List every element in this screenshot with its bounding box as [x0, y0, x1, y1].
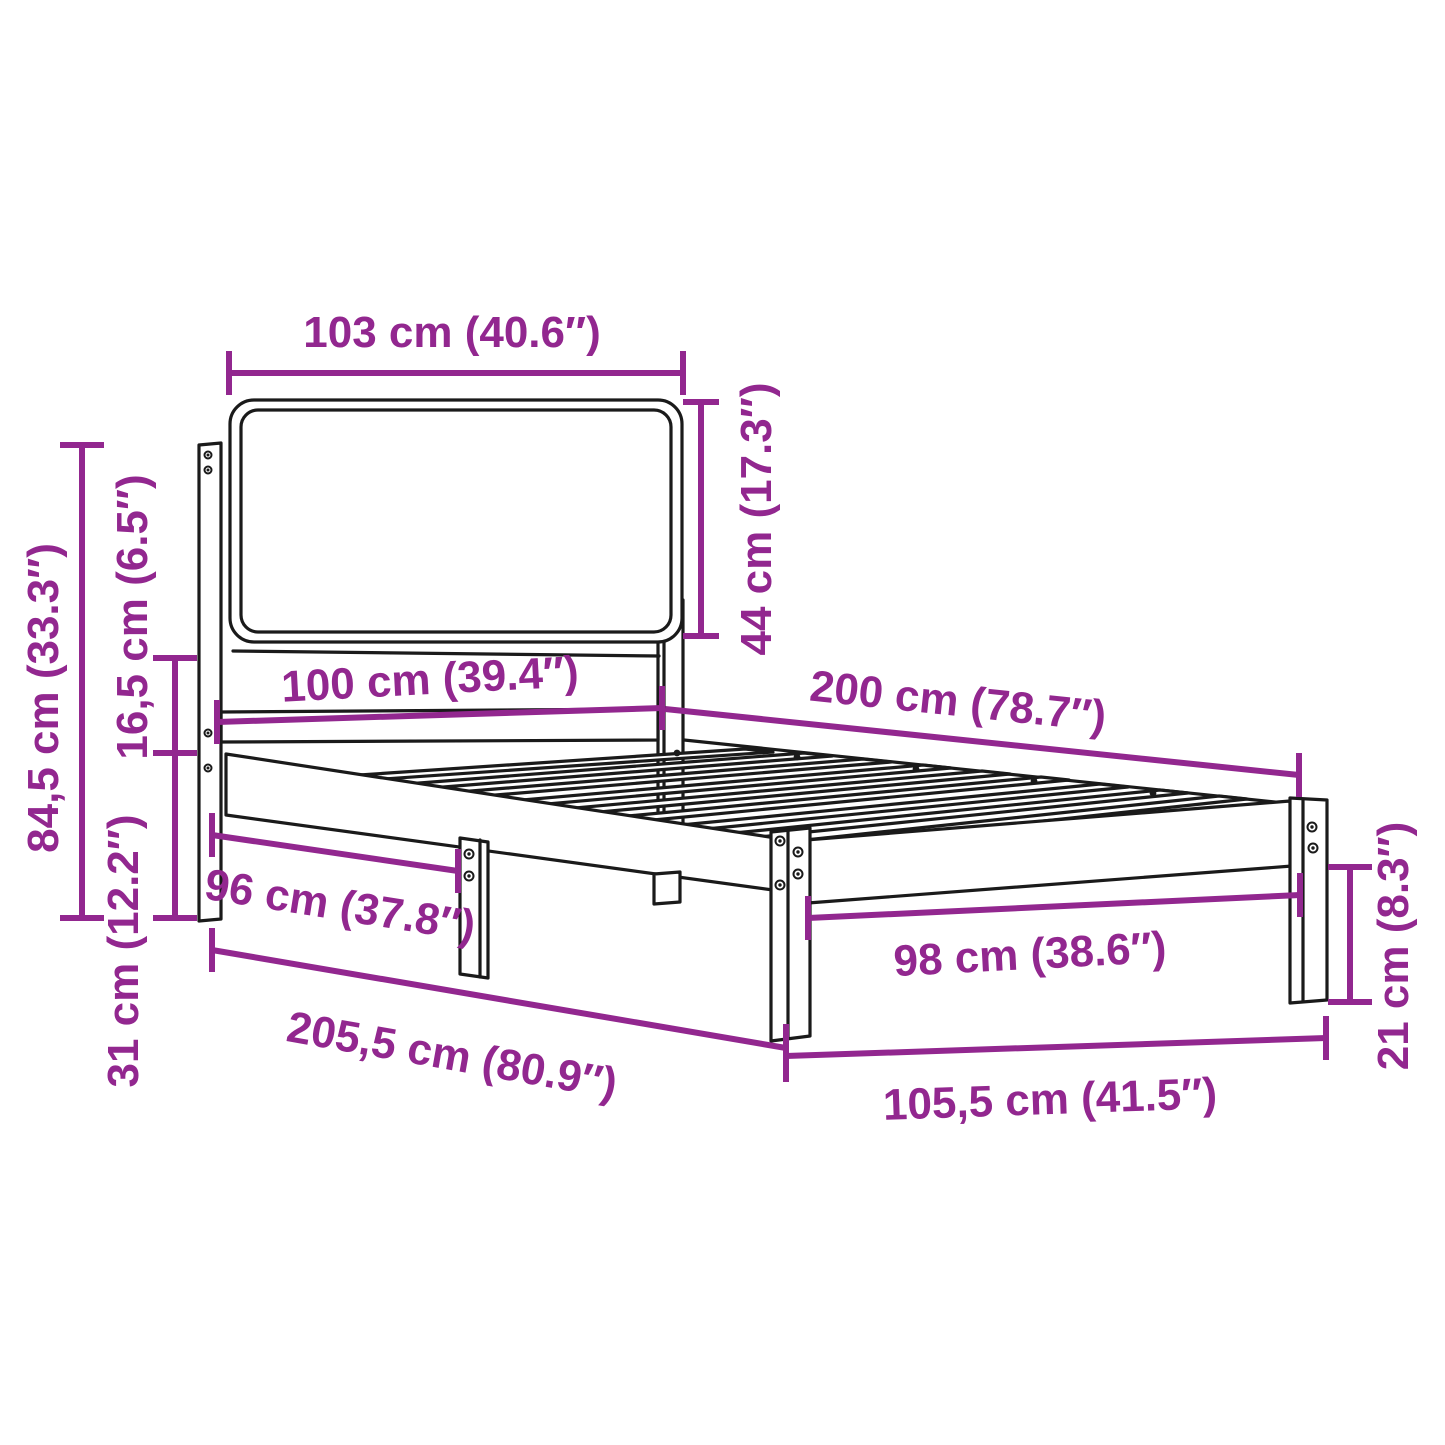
slat-screw: [1150, 790, 1157, 797]
dimension-label-frame-floor-height: 31 cm (12.2″): [99, 814, 148, 1087]
dimension-label-inner-width-head-end: 96 cm (37.8″): [201, 860, 478, 951]
dimension-frame-floor-height: 31 cm (12.2″): [99, 753, 197, 1088]
center-support-leg-far: [654, 872, 680, 904]
dimension-leg-height: 21 cm (8.3″): [1328, 822, 1418, 1071]
dimension-label-total-width: 105,5 cm (41.5″): [882, 1069, 1218, 1130]
headboard-panel-outer: [230, 400, 682, 642]
slat-screw: [794, 754, 801, 761]
dimension-label-total-length: 205,5 cm (80.9″): [283, 1002, 621, 1108]
slat-screw: [674, 750, 681, 757]
slat-screw: [1031, 778, 1038, 785]
dimension-label-inner-width-foot-end: 98 cm (38.6″): [892, 923, 1167, 986]
foot-back-leg: [1290, 798, 1327, 1003]
dimension-total-length: 205,5 cm (80.9″): [212, 928, 786, 1109]
dimension-headboard-width: 103 cm (40.6″): [229, 308, 683, 395]
dimension-total-width: 105,5 cm (41.5″): [786, 1016, 1326, 1130]
dimension-label-headboard-width: 103 cm (40.6″): [303, 308, 600, 357]
headboard-panel: [230, 400, 682, 656]
dimension-headboard-panel-height: 44 cm (17.3″): [683, 382, 781, 655]
dimension-label-total-height: 84,5 cm (33.3″): [19, 543, 68, 853]
dimension-panel-to-frame-gap: 16,5 cm (6.5″): [108, 474, 197, 759]
dimension-label-panel-to-frame-gap: 16,5 cm (6.5″): [108, 474, 157, 759]
dimension-label-headboard-panel-height: 44 cm (17.3″): [732, 382, 781, 655]
diagram-svg: 103 cm (40.6″) 44 cm (17.3″) 84,5 cm (33…: [0, 0, 1445, 1445]
dimension-total-height: 84,5 cm (33.3″): [19, 445, 104, 918]
bed-frame-dimension-diagram: 103 cm (40.6″) 44 cm (17.3″) 84,5 cm (33…: [0, 0, 1445, 1445]
dimension-label-leg-height: 21 cm (8.3″): [1369, 822, 1418, 1071]
dimension-label-bed-width: 100 cm (39.4″): [280, 647, 580, 712]
slat-screw: [913, 766, 920, 773]
foot-front-leg: [771, 828, 810, 1041]
